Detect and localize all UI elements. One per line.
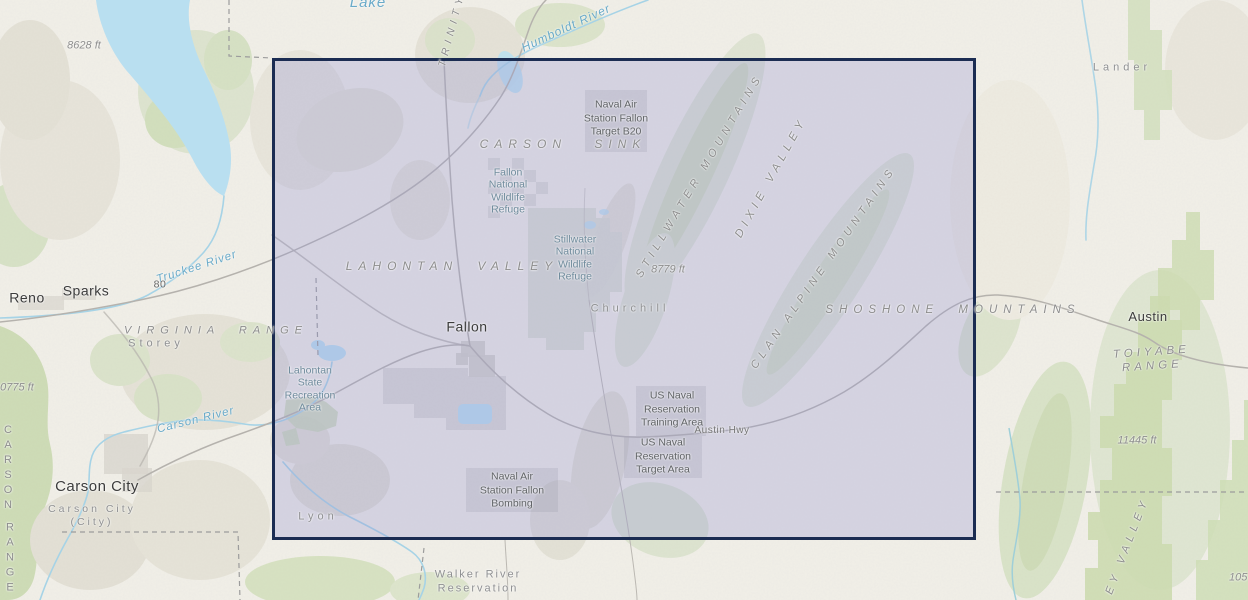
map-extent-selection-rectangle[interactable]	[272, 58, 976, 540]
map-canvas[interactable]: Lake 8628 ft TRINITY Humboldt River Nava…	[0, 0, 1248, 600]
